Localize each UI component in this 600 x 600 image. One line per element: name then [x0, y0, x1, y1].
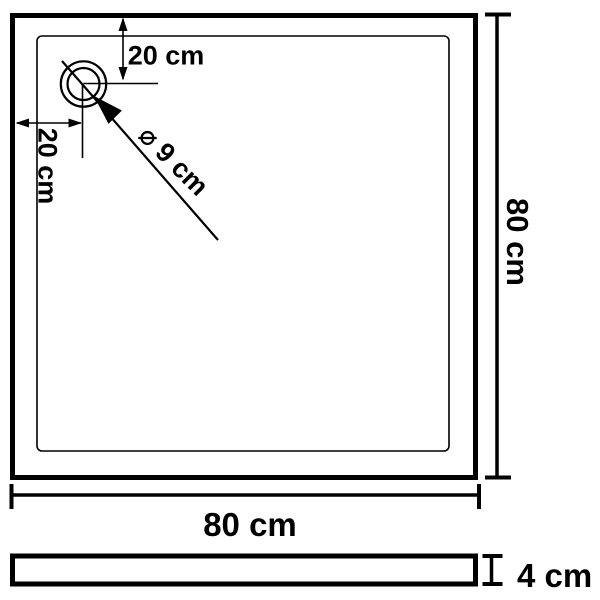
- tray-inner-edge: [37, 36, 449, 451]
- dim-drain-top-arrow-up-icon: [119, 18, 128, 32]
- drain-leader-line: [62, 61, 218, 240]
- dim-drain-left-arrow-right-icon: [69, 119, 83, 128]
- dim-drain-top-arrow-down-icon: [119, 67, 128, 81]
- label-drain-offset-left: 20 cm: [33, 128, 63, 205]
- label-width: 80 cm: [203, 506, 297, 543]
- side-view-bar: [13, 556, 476, 584]
- dim-drain-left-arrow-left-icon: [16, 119, 30, 128]
- label-drain-offset-top: 20 cm: [128, 41, 205, 71]
- dimension-diagram: 20 cm 20 cm ⌀ 9 cm 80 cm 80 cm 4 cm: [0, 0, 600, 600]
- label-thickness: 4 cm: [517, 557, 592, 594]
- drain-leader-arrowhead-icon: [94, 96, 122, 124]
- label-height: 80 cm: [500, 198, 535, 286]
- shower-tray-drawing: 20 cm 20 cm ⌀ 9 cm 80 cm 80 cm 4 cm: [0, 0, 600, 600]
